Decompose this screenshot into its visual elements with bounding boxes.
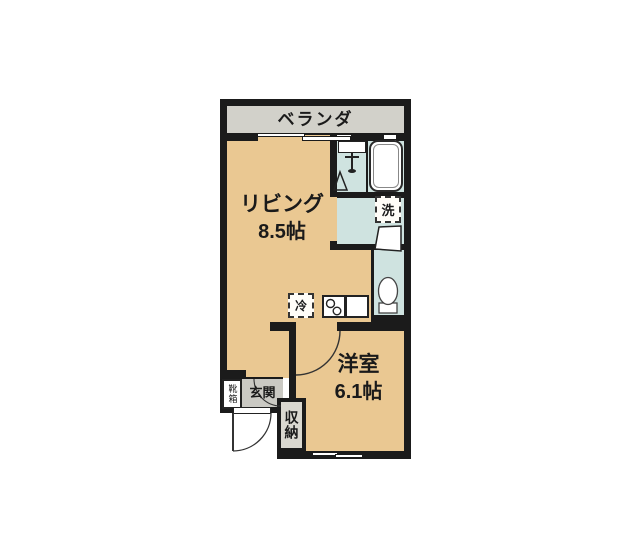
- living-room-size: 8.5帖: [232, 218, 332, 246]
- living-room-label: リビング: [232, 190, 332, 220]
- western-room-label: 洋室: [306, 350, 411, 380]
- stove-burners-icon: [327, 300, 341, 315]
- faucet-icon: [345, 153, 359, 173]
- toilet-icon: [379, 278, 398, 314]
- entrance-label: 玄関: [242, 381, 283, 405]
- laundry-pan-icon: [375, 226, 401, 251]
- plan-symbols-overlay: [0, 0, 636, 558]
- western-room-size: 6.1帖: [306, 378, 411, 406]
- floor-plan: 洗 冷 靴箱 収納: [0, 0, 636, 558]
- entry-door-swing: [233, 413, 271, 451]
- folding-door-icon: [334, 172, 347, 190]
- veranda-label: ベランダ: [227, 106, 404, 133]
